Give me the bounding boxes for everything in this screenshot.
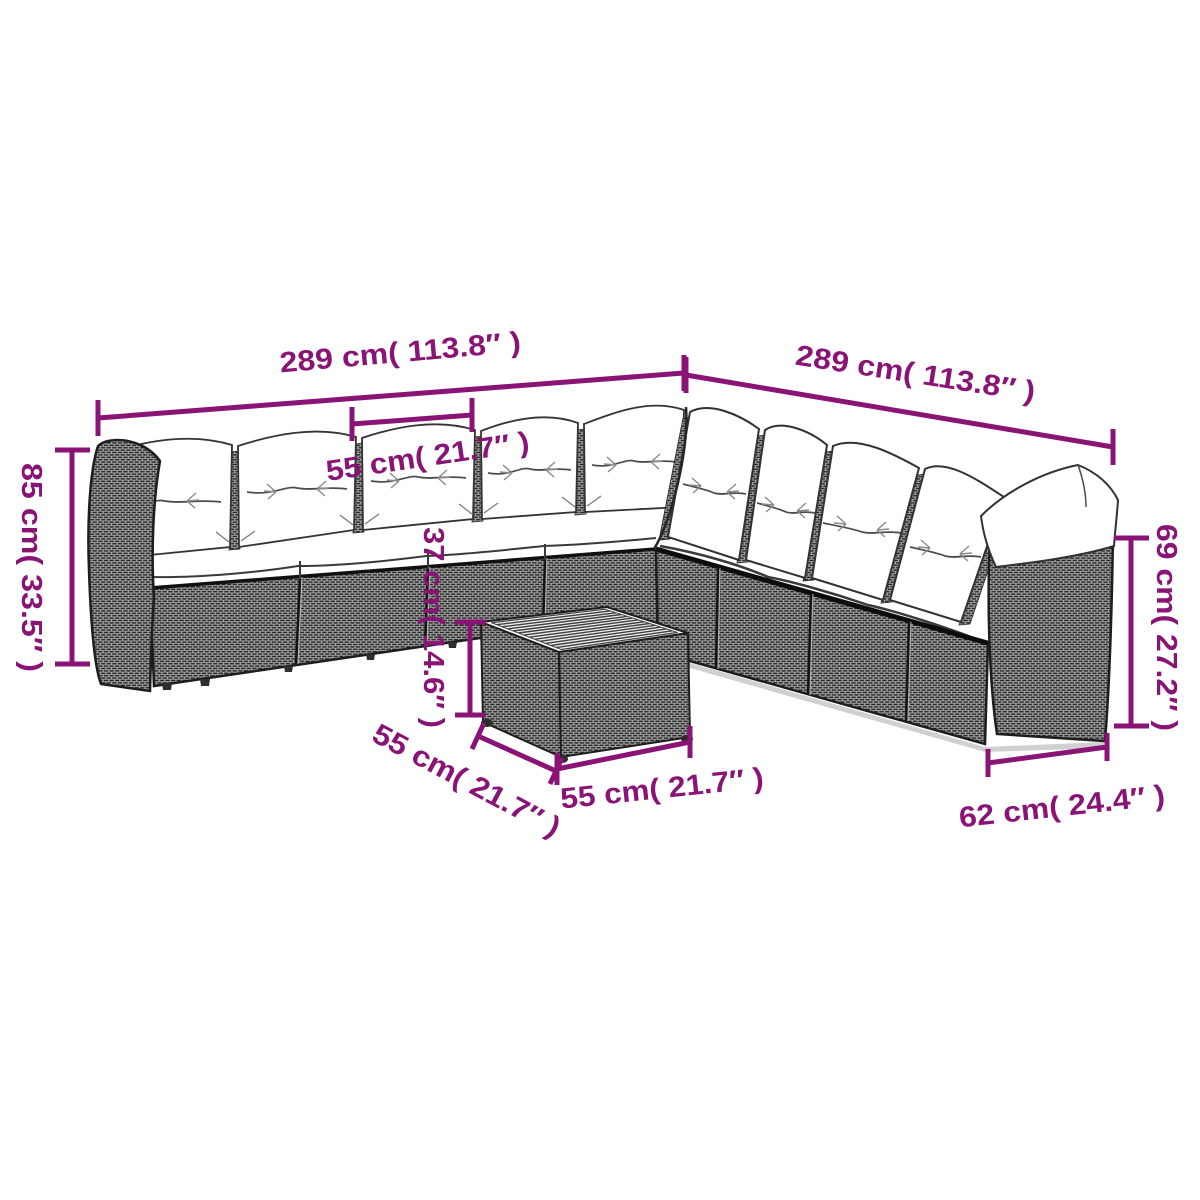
svg-text:69 cm( 27.2″ ): 69 cm( 27.2″ ) (1150, 524, 1182, 731)
svg-text:37 cm( 14.6″ ): 37 cm( 14.6″ ) (417, 527, 449, 728)
svg-text:85 cm( 33.5″ ): 85 cm( 33.5″ ) (15, 463, 47, 672)
